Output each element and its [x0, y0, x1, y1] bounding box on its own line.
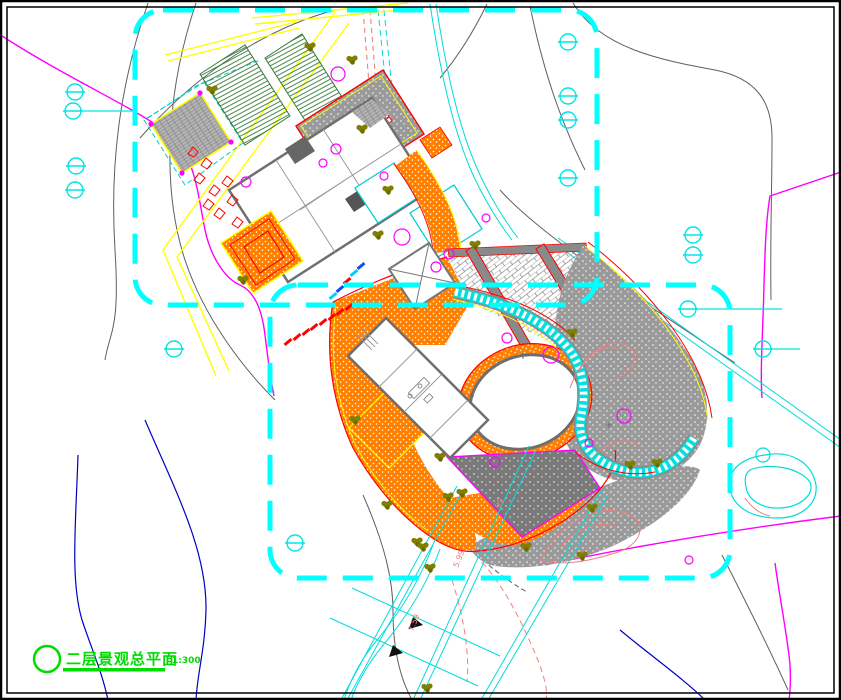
drawing-scale: 1:300 [172, 656, 201, 666]
central-complex [330, 242, 770, 700]
elevation-label-1: 5.99 [452, 549, 467, 569]
title-underline [63, 668, 165, 672]
title-block: 二层景观总平面 1:300 [34, 646, 201, 672]
cad-sheet: 7.99 5.99 7.59 二层景观总平面 1:300 [0, 0, 841, 700]
title-bubble-icon [34, 646, 60, 672]
pond [729, 448, 816, 518]
drawing-title: 二层景观总平面 [66, 650, 178, 668]
site-plan-svg: 7.99 5.99 7.59 二层景观总平面 1:300 [0, 0, 841, 700]
